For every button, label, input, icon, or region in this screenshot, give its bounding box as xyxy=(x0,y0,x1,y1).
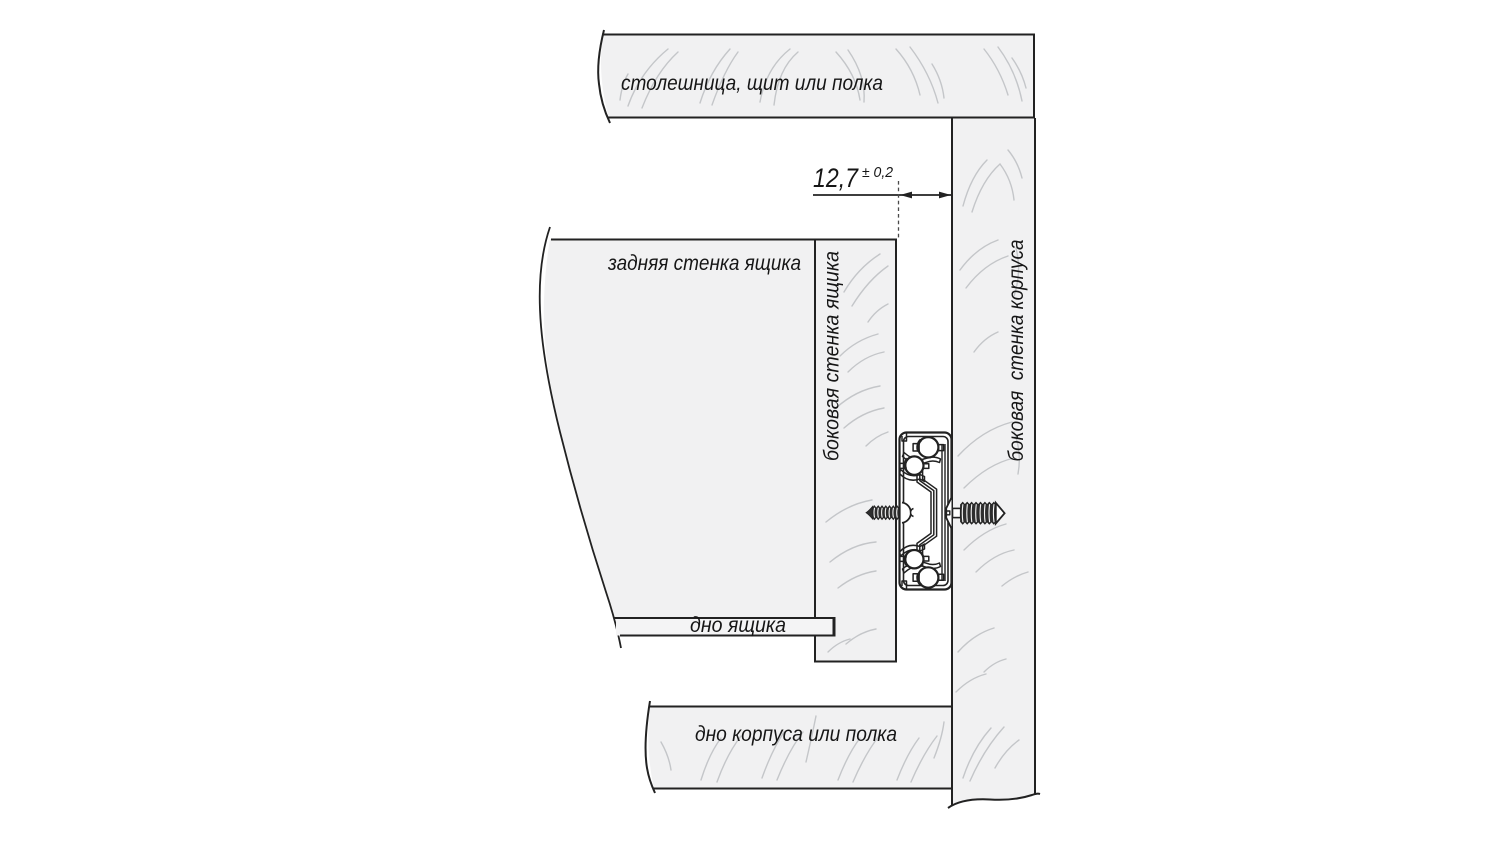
svg-text:дно ящика: дно ящика xyxy=(690,614,786,637)
svg-text:± 0,2: ± 0,2 xyxy=(862,164,894,181)
svg-text:боковая стенка ящика: боковая стенка ящика xyxy=(821,251,844,461)
svg-text:боковая стенка корпуса: боковая стенка корпуса xyxy=(1005,240,1028,462)
svg-text:задняя стенка ящика: задняя стенка ящика xyxy=(607,252,801,275)
svg-text:дно корпуса или полка: дно корпуса или полка xyxy=(695,723,897,746)
svg-text:столешница, щит или полка: столешница, щит или полка xyxy=(621,72,883,95)
svg-text:12,7: 12,7 xyxy=(813,163,859,193)
